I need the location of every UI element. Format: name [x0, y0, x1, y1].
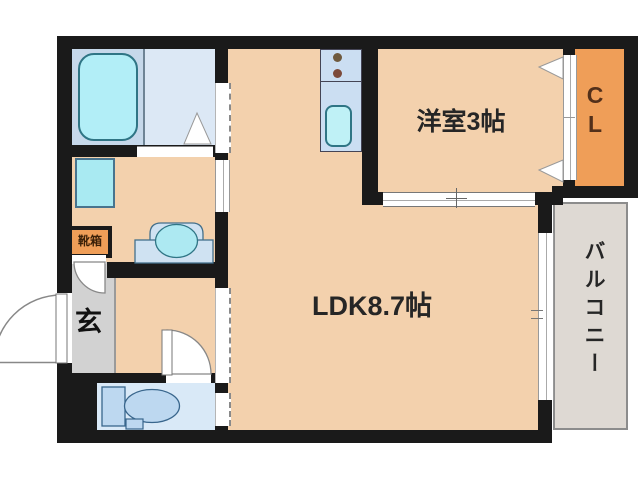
entrance-door-swing [0, 295, 62, 363]
closet-label: CL [581, 82, 608, 157]
hall-door-leaf [162, 330, 172, 375]
western-room-label: 洋室3帖 [371, 102, 551, 138]
toilet-bowl [125, 390, 180, 423]
closet-door-triangle-bottom [539, 160, 563, 182]
toilet-tank [102, 387, 125, 426]
hall-door-swing [167, 330, 211, 374]
ldk-label: LDK8.7帖 [252, 284, 492, 323]
floor-plan: 靴箱 LDK8.7帖 洋室3帖 CL バルコニー 玄 [0, 0, 640, 480]
washroom-door-triangle [184, 113, 211, 144]
genkan-door-swing [74, 262, 105, 293]
balcony-label: バルコニー [578, 240, 608, 410]
vanity-basin [156, 225, 198, 258]
fixtures-overlay [0, 0, 640, 480]
closet-door-triangle-top [539, 57, 563, 79]
entrance-door-leaf [56, 294, 67, 363]
entrance-label: 玄 [75, 300, 102, 339]
toilet-flush [126, 419, 143, 429]
